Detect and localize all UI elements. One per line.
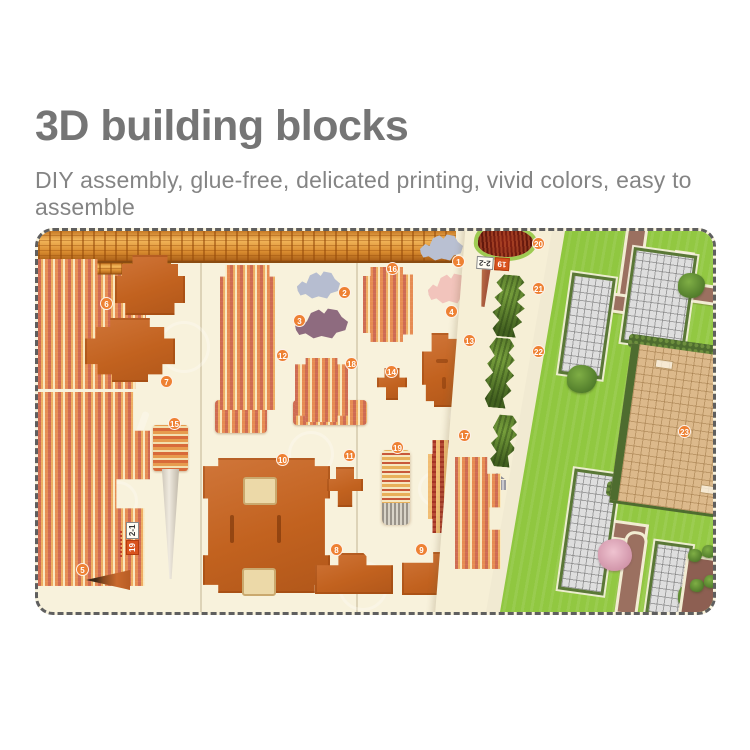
piece-number-badge: 9	[415, 543, 428, 556]
piece-number-badge: 12	[276, 349, 289, 362]
sheet-code: 2-2	[476, 256, 494, 270]
piece-number-badge: 8	[330, 543, 343, 556]
terrace-tree	[702, 545, 716, 558]
sheet-label-2-2: 19 2-2	[476, 256, 510, 271]
page-subtitle: DIY assembly, glue-free, delicated print…	[35, 167, 750, 221]
piece-number-badge: 2	[338, 286, 351, 299]
piece-number-badge: 21	[532, 282, 545, 295]
piece-number-badge: 18	[345, 357, 358, 370]
brick-tower-piece	[220, 265, 275, 410]
piece-number-badge: 16	[386, 262, 399, 275]
sheet-number: 19	[126, 540, 139, 555]
piece-number-badge: 14	[385, 365, 398, 378]
piece-number-badge: 10	[276, 453, 289, 466]
panel-slot	[230, 515, 234, 543]
blossom-tree	[598, 539, 632, 571]
piece-number-badge: 22	[532, 345, 545, 358]
piece-number-badge: 1	[452, 255, 465, 268]
cream-tab	[242, 568, 276, 596]
roof-piece	[85, 318, 175, 382]
product-photo: 19 2-1 19 2-2	[35, 228, 716, 615]
spire-top-piece	[153, 425, 188, 471]
striped-column-base	[382, 503, 410, 525]
piece-number-badge: 23	[678, 425, 691, 438]
piece-number-badge: 15	[168, 417, 181, 430]
brick-gate-piece	[363, 267, 413, 342]
piece-number-badge: 17	[458, 429, 471, 442]
panel-slot	[277, 515, 281, 543]
piece-number-badge: 5	[76, 563, 89, 576]
piece-number-badge: 13	[463, 334, 476, 347]
piece-number-badge: 19	[391, 441, 404, 454]
piece-number-badge: 3	[293, 314, 306, 327]
sheet-seam	[200, 231, 202, 612]
terrace-tree	[704, 575, 716, 588]
roof-piece	[115, 255, 185, 315]
sheet-number: 19	[494, 257, 510, 271]
piece-number-badge: 6	[100, 297, 113, 310]
golden-beam-strip	[38, 231, 456, 263]
plaza-mark	[700, 484, 716, 495]
brick-block-piece	[295, 358, 348, 422]
piece-number-badge: 7	[160, 375, 173, 388]
piece-number-badge: 4	[445, 305, 458, 318]
photo-canvas: 19 2-1 19 2-2	[38, 231, 713, 612]
emboss-detail	[442, 377, 446, 389]
plaza-mark	[655, 359, 674, 370]
sheet-label-2-1: 19 2-1	[126, 522, 139, 555]
piece-number-badge: 11	[343, 449, 356, 462]
cream-tab	[243, 477, 277, 505]
spire-shaft-piece	[157, 469, 184, 579]
piece-number-badge: 20	[532, 237, 545, 250]
emboss-detail	[436, 359, 448, 363]
page-title: 3D building blocks	[35, 102, 408, 151]
sheet-code: 2-1	[126, 522, 139, 540]
cloud-piece-blue	[297, 270, 340, 300]
tiny-print-marks	[120, 531, 122, 557]
